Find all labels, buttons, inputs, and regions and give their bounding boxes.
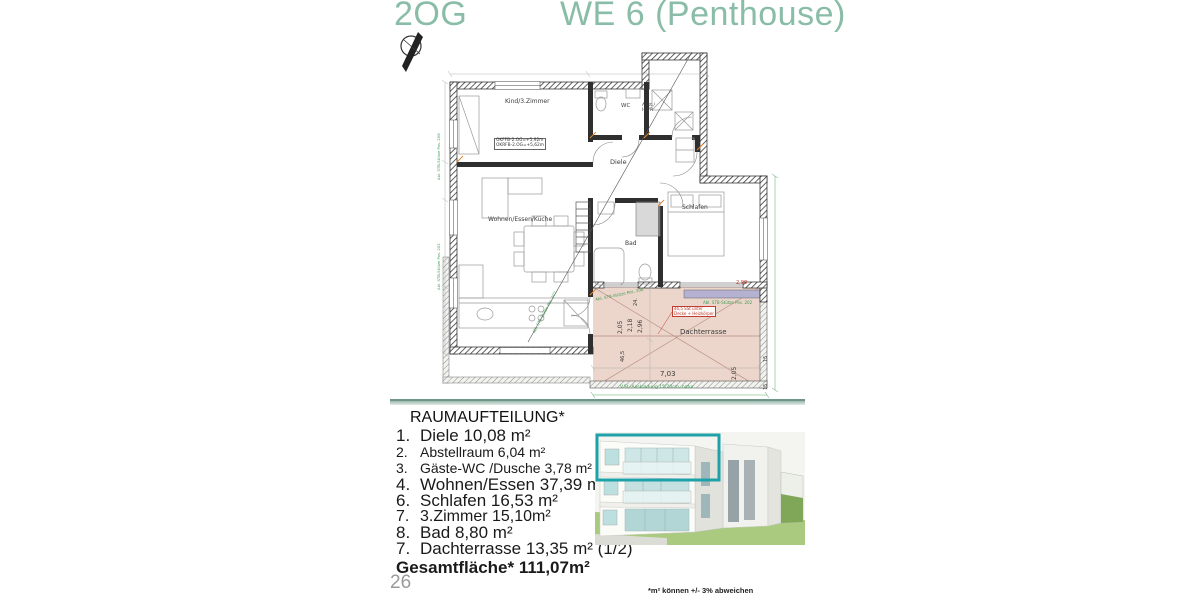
note-green-b: Abl. STB-Stütze Pos. 202 — [703, 301, 752, 306]
total-area: Gesamtfläche* 111,07m² — [396, 559, 636, 576]
dim-label-red: 2,98 — [736, 281, 747, 287]
room-list-item-text: Diele 10,08 m² — [420, 428, 531, 444]
floor-plan: Kind/3.Zimmer WC Abst./ HWR Diele Wohnen… — [440, 50, 810, 400]
room-list-item-text: Schlafen 16,53 m² — [420, 493, 558, 509]
room-label-dachterrasse: Dachterrasse — [680, 328, 727, 336]
dim-label-a: 2,05 — [618, 321, 625, 334]
dim-label-width: 7,03 — [660, 370, 676, 378]
room-label-schlafen: Schlafen — [682, 205, 708, 212]
room-list-item-number: 6. — [396, 493, 420, 509]
separator-rule — [390, 399, 805, 405]
note-red-line2: Decke + Heizkörper — [674, 312, 714, 317]
dim-label-d: 46,5 — [621, 351, 627, 362]
note-red: 46,5 SSt unter Decke + Heizkörper — [672, 306, 716, 317]
note-green-left-2: Abl. STB-Stütze Pos. 202 — [437, 243, 441, 290]
note-levels: OKFFB-2.OG=+5,92m OKRFB-2.OG=+5,62m — [494, 138, 546, 150]
building-render — [595, 432, 805, 545]
page-number: 26 — [390, 572, 411, 594]
room-label-kind: Kind/3.Zimmer — [505, 99, 550, 106]
note-level-2: OKRFB-2.OG=+5,62m — [496, 144, 544, 149]
note-green-left-1: Abl. STB-Stütze Pos. 208 — [437, 133, 441, 180]
room-list-item-text: Abstellraum 6,04 m² — [420, 444, 545, 460]
room-label-wc: WC — [621, 103, 630, 109]
room-label-diele: Diele — [610, 159, 627, 166]
north-arrow-icon — [394, 30, 430, 74]
note-green-c: V.St.-Auskladung 15/20cm, natur — [620, 385, 694, 390]
brochure-page: 2OG WE 6 (Penthouse) — [0, 0, 1200, 600]
dim-label-c: 2,96 — [638, 320, 645, 333]
room-label-abst: Abst./ HWR — [642, 103, 662, 113]
room-list-item-number: 7. — [396, 541, 420, 557]
dim-label-e: 24. — [634, 298, 640, 306]
dim-label-g: 15 — [764, 356, 770, 362]
floor-title: 2OG — [394, 0, 467, 34]
room-label-wohnen: Wohnen/Essen/Küche — [488, 217, 552, 224]
dim-label-f: 2,05 — [732, 367, 739, 380]
room-list-item-number: 2. — [396, 444, 420, 460]
room-list-title: RAUMAUFTEILUNG* — [410, 409, 636, 427]
unit-title: WE 6 (Penthouse) — [560, 0, 846, 34]
dim-label-b: 2,18 — [628, 319, 635, 332]
dim-label-h: 15 — [764, 384, 770, 390]
disclaimer-text: *m² können +/- 3% abweichen — [648, 586, 753, 595]
room-label-bad: Bad — [625, 241, 637, 248]
room-list-item-number: 1. — [396, 428, 420, 444]
